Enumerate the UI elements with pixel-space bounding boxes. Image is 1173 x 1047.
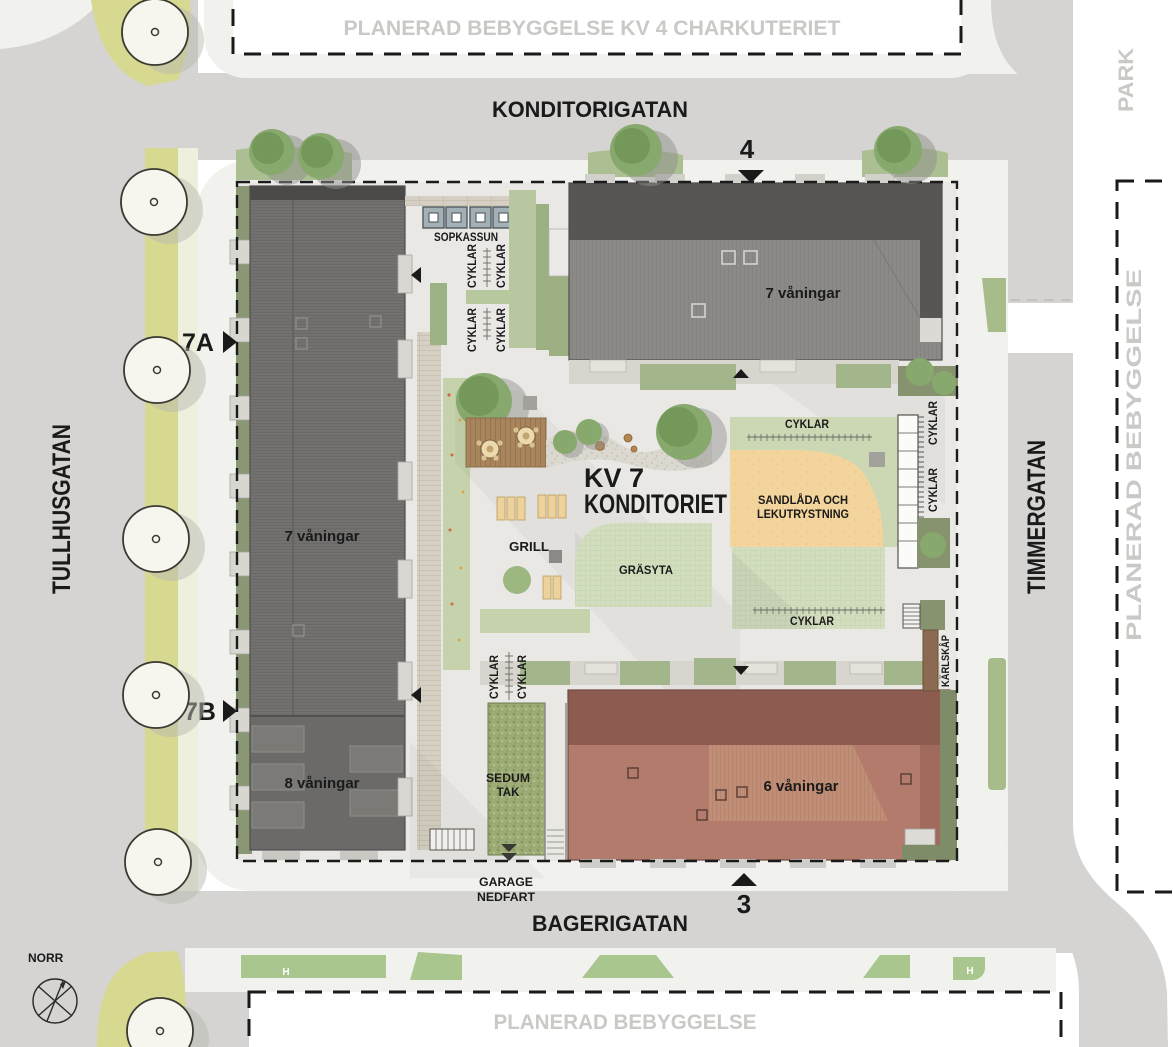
svg-text:BAGERIGATAN: BAGERIGATAN (532, 911, 688, 936)
svg-text:6 våningar: 6 våningar (763, 778, 838, 795)
svg-text:NORR: NORR (28, 951, 64, 965)
svg-text:GRÄSYTA: GRÄSYTA (619, 562, 673, 577)
svg-text:PARK: PARK (1115, 48, 1138, 112)
svg-text:3: 3 (737, 889, 751, 919)
svg-text:PLANERAD BEBYGGELSE KV 4 CHARK: PLANERAD BEBYGGELSE KV 4 CHARKUTERIET (344, 17, 841, 40)
svg-text:SEDUM: SEDUM (486, 773, 530, 785)
svg-text:7 våningar: 7 våningar (284, 528, 359, 545)
svg-text:KÄRLSKÅP: KÄRLSKÅP (939, 635, 952, 687)
svg-text:PLANERAD BEBYGGELSE: PLANERAD BEBYGGELSE (494, 1011, 757, 1034)
svg-text:7 våningar: 7 våningar (765, 285, 840, 302)
svg-text:CYKLAR: CYKLAR (496, 243, 508, 288)
svg-text:CYKLAR: CYKLAR (928, 400, 940, 445)
svg-text:CYKLAR: CYKLAR (467, 307, 479, 352)
svg-text:CYKLAR: CYKLAR (489, 654, 501, 699)
svg-text:TULLHUSGATAN: TULLHUSGATAN (48, 424, 76, 594)
svg-text:4: 4 (740, 134, 755, 164)
svg-text:CYKLAR: CYKLAR (785, 419, 830, 431)
svg-text:GARAGE: GARAGE (479, 875, 533, 889)
svg-text:NEDFART: NEDFART (477, 890, 536, 904)
svg-text:8 våningar: 8 våningar (284, 775, 359, 792)
svg-text:GRILL: GRILL (509, 539, 549, 554)
svg-text:CYKLAR: CYKLAR (928, 467, 940, 512)
svg-text:TIMMERGATAN: TIMMERGATAN (1023, 440, 1051, 594)
svg-text:CYKLAR: CYKLAR (467, 243, 479, 288)
svg-text:CYKLAR: CYKLAR (517, 654, 529, 699)
svg-text:H: H (282, 967, 289, 978)
svg-text:PLANERAD BEBYGGELSE: PLANERAD BEBYGGELSE (1123, 269, 1146, 641)
svg-text:SOPKASSUN: SOPKASSUN (434, 232, 498, 244)
svg-text:KONDITORIET: KONDITORIET (584, 489, 727, 519)
svg-text:CYKLAR: CYKLAR (496, 307, 508, 352)
svg-text:KONDITORIGATAN: KONDITORIGATAN (492, 97, 688, 122)
svg-text:TAK: TAK (497, 787, 520, 799)
svg-text:SANDLÅDA OCH: SANDLÅDA OCH (758, 494, 848, 507)
svg-text:H: H (966, 966, 973, 977)
svg-text:CYKLAR: CYKLAR (790, 616, 835, 628)
svg-text:LEKUTRYSTNING: LEKUTRYSTNING (757, 509, 849, 521)
